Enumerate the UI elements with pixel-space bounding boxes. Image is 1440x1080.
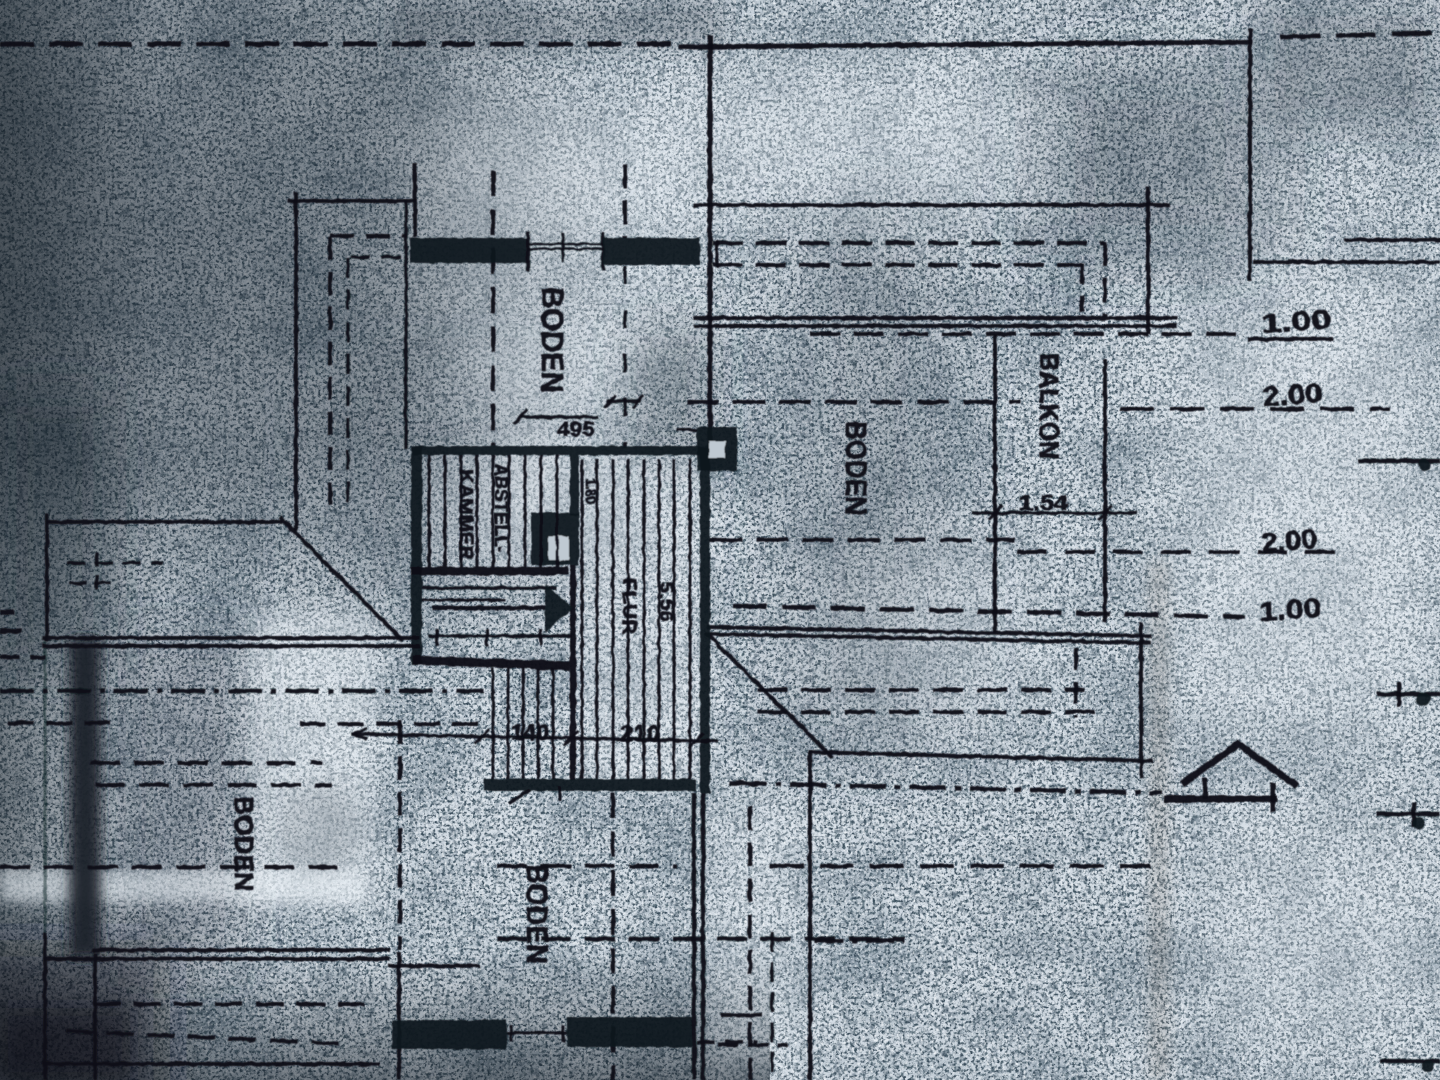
svg-text:BODEN: BODEN: [520, 864, 553, 964]
svg-text:BODEN: BODEN: [839, 421, 872, 515]
svg-text:BALKON: BALKON: [1034, 353, 1064, 459]
svg-text:1.54: 1.54: [1019, 492, 1068, 515]
svg-text:BODEN: BODEN: [229, 796, 259, 891]
svg-text:140: 140: [511, 720, 549, 745]
svg-text:495: 495: [557, 419, 595, 441]
svg-text:ABSTELL-: ABSTELL-: [491, 463, 511, 553]
svg-text:210: 210: [620, 721, 660, 746]
svg-text:FLUR: FLUR: [618, 578, 639, 635]
svg-text:BODEN: BODEN: [535, 287, 570, 393]
svg-text:5.56: 5.56: [655, 582, 676, 622]
svg-text:KAMMER: KAMMER: [456, 469, 476, 560]
svg-text:1.80: 1.80: [582, 478, 599, 504]
svg-text:1.00: 1.00: [1260, 304, 1332, 339]
svg-text:2.00: 2.00: [1261, 378, 1323, 412]
svg-text:2.00: 2.00: [1260, 524, 1318, 558]
svg-text:1.00: 1.00: [1258, 593, 1322, 627]
